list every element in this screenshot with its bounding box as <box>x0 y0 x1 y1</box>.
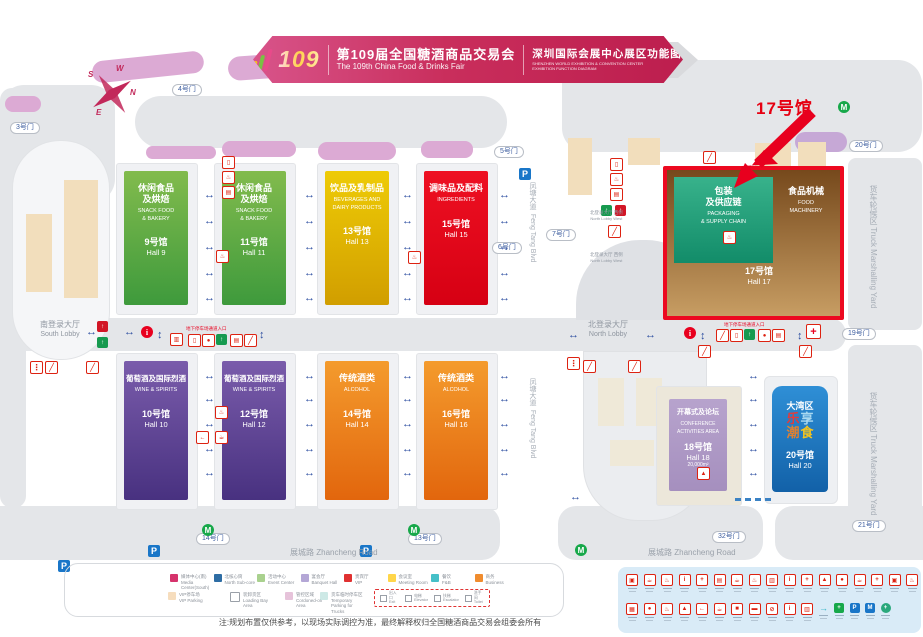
pink-canopy <box>421 141 473 158</box>
banner-divider <box>523 45 524 75</box>
double-arrow-icon: ↔ <box>402 468 413 479</box>
exhibition-map: 109 第109届全国糖酒商品交易会 The 109th China Food … <box>0 0 923 637</box>
hall20-brand-row1: 乐享 <box>772 412 828 426</box>
header-banner: 109 第109届全国糖酒商品交易会 The 109th China Food … <box>253 36 683 83</box>
double-arrow-icon: ↔ <box>304 293 315 304</box>
panel-facility-icon: ♨ <box>661 603 673 621</box>
legend-dashed-box: 出入口Exit电梯Elevator扶梯Escalator洗手间Toilet <box>374 589 490 607</box>
escalator-icon: ╱ <box>583 360 596 373</box>
escalator-icon: ╱ <box>608 225 621 238</box>
double-arrow-icon: ↔ <box>86 327 97 338</box>
double-arrow-icon: ↔ <box>304 190 315 201</box>
compass-s: S <box>88 70 93 79</box>
loading-bay <box>26 214 52 292</box>
underground-parking-label: 地下停车场通道入口 <box>186 326 227 332</box>
fengtang-blvd-label: 凤塘大道 Feng Tang Blvd <box>527 378 537 458</box>
panel-facility-icon: ● <box>644 603 656 621</box>
legend-swatch <box>431 574 439 582</box>
panel-facility-icon: → <box>819 603 829 621</box>
double-arrow-icon: ↔ <box>204 419 215 430</box>
double-arrow-icon: ↔ <box>304 268 315 279</box>
panel-facility-icon: ▲ <box>819 574 831 592</box>
hall20-brand-char: 享 <box>801 412 814 426</box>
double-arrow-icon: ↔ <box>499 419 510 430</box>
metro-icon: M <box>408 524 420 536</box>
legend-swatch <box>285 592 293 600</box>
south-lobby-label: 南登录大厅 South Lobby <box>40 320 80 340</box>
gate-label: 14号门 <box>196 533 230 545</box>
double-arrow-icon: ↔ <box>645 330 656 341</box>
panel-facility-icon: + <box>881 603 891 621</box>
double-arrow-icon: ↕ <box>157 330 163 341</box>
double-arrow-icon: ↔ <box>748 394 759 405</box>
facility-icon: ● <box>202 334 215 347</box>
facility-icon: ♨ <box>215 406 228 419</box>
double-arrow-icon: ↔ <box>204 293 215 304</box>
legend-item: VIP停车场VIP Parking <box>168 592 203 603</box>
panel-facility-icon: ▦ <box>626 603 638 621</box>
double-arrow-icon: ↔ <box>402 216 413 227</box>
legend-swatch <box>214 574 222 582</box>
legend-swatch <box>388 574 396 582</box>
truck-yard-upper <box>848 158 922 330</box>
loading-bay <box>628 138 660 165</box>
panel-facility-icon: + <box>696 574 708 592</box>
double-arrow-icon: ↔ <box>402 371 413 382</box>
double-arrow-icon: ↔ <box>204 268 215 279</box>
truck-yard-lower <box>848 345 922 520</box>
loading-bay <box>568 138 592 195</box>
panel-facility-icon: + <box>834 603 844 621</box>
panel-facility-icon: M <box>865 603 875 621</box>
legend-swatch <box>475 574 483 582</box>
double-arrow-icon: ↔ <box>204 371 215 382</box>
double-arrow-icon: ↔ <box>204 444 215 455</box>
hall-14: 传统酒类ALCOHOL14号馆Hall 14 <box>325 361 389 500</box>
panel-facility-icon: + <box>871 574 883 592</box>
hall-13: 饮品及乳制品BEVERAGES ANDDAIRY PRODUCTS13号馆Hal… <box>325 171 389 305</box>
double-arrow-icon: ↔ <box>499 371 510 382</box>
double-arrow-icon: ↔ <box>402 190 413 201</box>
panel-facility-icon: i <box>784 603 796 621</box>
escalator-icon: ⋮ <box>567 357 580 370</box>
panel-facility-icon: ♨ <box>661 574 673 592</box>
double-arrow-icon: ↔ <box>499 216 510 227</box>
legend-swatch <box>320 592 328 600</box>
hall20-brand-char: 食 <box>801 426 814 440</box>
legend-swatch <box>301 574 309 582</box>
double-arrow-icon: ↔ <box>402 268 413 279</box>
panel-facility-icon: ☕ <box>714 603 726 621</box>
panel-facility-icon: ■ <box>731 603 743 621</box>
compass-w: W <box>116 64 124 73</box>
dashed-route <box>735 498 771 501</box>
hall20-region: 大湾区 <box>772 399 828 412</box>
escalator-icon: ⋮ <box>30 361 43 374</box>
facility-icon: ▯ <box>610 158 623 171</box>
lobby-block <box>610 440 654 466</box>
double-arrow-icon: ↔ <box>499 444 510 455</box>
escalator-icon: ╱ <box>86 361 99 374</box>
hall20-brand-char: 潮 <box>786 426 799 440</box>
double-arrow-icon: ↔ <box>499 293 510 304</box>
pink-canopy <box>222 141 296 157</box>
parking-icon: P <box>519 168 531 180</box>
facility-icon: ☕ <box>215 431 228 444</box>
hall-16: 传统酒类ALCOHOL16号馆Hall 16 <box>424 361 488 500</box>
escalator-icon: ╱ <box>716 329 729 342</box>
panel-facility-icon: ☕ <box>644 574 656 592</box>
facility-icon: ← <box>196 431 209 444</box>
double-arrow-icon: ↔ <box>204 468 215 479</box>
compass-n: N <box>130 88 136 97</box>
panel-facility-icon: ▥ <box>766 574 778 592</box>
hall-17-label: 17号馆 Hall 17 <box>729 266 789 286</box>
facility-legend-panel: ▣☕♨i+▤☕♨▥i+▲●☕+▣♨i ▦●♨▲←☕■▬⊘i▥→+PM+ <box>618 567 921 633</box>
double-arrow-icon: ↔ <box>748 371 759 382</box>
compass-icon: S N E W <box>86 68 138 120</box>
hall20-num: 20号馆 <box>772 450 828 461</box>
panel-facility-icon: ▤ <box>714 574 726 592</box>
loading-bay <box>64 180 98 298</box>
panel-facility-icon: ☕ <box>854 574 866 592</box>
north-lobby-west-label: 北登录大厅 西侧 North Lobby West <box>590 210 623 222</box>
panel-facility-icon: + <box>801 574 813 592</box>
pink-canopy <box>146 146 216 159</box>
gate-label: 19号门 <box>842 328 876 340</box>
double-arrow-icon: ↔ <box>204 216 215 227</box>
legend-item: 活动中心Event Center <box>257 574 294 585</box>
double-arrow-icon: ↔ <box>499 394 510 405</box>
info-icon: i <box>684 327 696 339</box>
hall20-brand-char: 乐 <box>786 412 799 426</box>
double-arrow-icon: ↔ <box>304 371 315 382</box>
legend-dashed-item: 扶梯Escalator <box>434 594 459 603</box>
legend-dashed-item: 电梯Elevator <box>405 594 428 603</box>
facility-icon: ● <box>758 329 771 342</box>
panel-facility-icon: i <box>679 574 691 592</box>
double-arrow-icon: ↔ <box>748 468 759 479</box>
exit-icon: ↑ <box>97 321 108 332</box>
legend-swatch <box>344 574 352 582</box>
pink-canopy <box>318 142 396 160</box>
info-icon: i <box>141 326 153 338</box>
double-arrow-icon: ↔ <box>499 268 510 279</box>
gate-label: 21号门 <box>852 520 886 532</box>
hall17-right-en: FOODMACHINERY <box>775 200 837 215</box>
double-arrow-icon: ↔ <box>204 394 215 405</box>
double-arrow-icon: ↔ <box>304 468 315 479</box>
banner-divider <box>328 45 329 75</box>
panel-facility-icon: ▣ <box>626 574 638 592</box>
hall-12: 葡萄酒及国际烈酒WINE & SPIRITS12号馆Hall 12 <box>222 361 286 500</box>
compass-e: E <box>96 108 101 117</box>
double-arrow-icon: ↔ <box>748 444 759 455</box>
panel-facility-icon: ⊘ <box>766 603 778 621</box>
facility-icon: ♨ <box>610 173 623 186</box>
north-lobby-label: 北登录大厅 North Lobby <box>588 320 628 340</box>
panel-facility-icon: ☕ <box>731 574 743 592</box>
double-arrow-icon: ↕ <box>259 330 265 341</box>
double-arrow-icon: ↔ <box>402 394 413 405</box>
double-arrow-icon: ↔ <box>304 394 315 405</box>
legend-item: 媒体中心(南)Media Center(South) <box>170 574 215 591</box>
legend-swatch <box>257 574 265 582</box>
double-arrow-icon: ↔ <box>304 419 315 430</box>
facility-icon: ▯ <box>730 329 743 342</box>
escalator-icon: ╱ <box>628 360 641 373</box>
gate-label: 32号门 <box>712 531 746 543</box>
entrance-icon: ↑ <box>744 329 755 340</box>
double-arrow-icon: ↕ <box>797 331 803 342</box>
entrance-icon: ↑ <box>216 334 227 345</box>
pink-canopy <box>5 96 41 112</box>
banner-title-cn: 第109届全国糖酒商品交易会 <box>337 47 516 62</box>
hall-15: 调味品及配料INGREDIENTS15号馆Hall 15 <box>424 171 488 305</box>
legend-dashed-item: 出入口Exit <box>380 591 399 605</box>
legend-item: 宴会厅Banquet Hall <box>301 574 338 585</box>
hall20-name: Hall 20 <box>772 461 828 470</box>
double-arrow-icon: ↔ <box>402 419 413 430</box>
double-arrow-icon: ↔ <box>402 444 413 455</box>
legend-item: 北核心筒North Sub-core <box>214 574 256 585</box>
banner-subtitle: 深圳国际会展中心展区功能图 SHENZHEN WORLD EXHIBITION … <box>532 48 682 71</box>
panel-facility-icon: ♨ <box>749 574 761 592</box>
facility-icon: ♨ <box>222 171 235 184</box>
double-arrow-icon: ↔ <box>570 492 581 503</box>
lobby-block <box>598 378 624 426</box>
hall-9: 休闲食品及烘焙SNACK FOOD& BAKERY9号馆Hall 9 <box>124 171 188 305</box>
legend-item: 会议室Meeting Room <box>388 574 428 585</box>
hall20-brand-row2: 潮食 <box>772 426 828 440</box>
zhancheng-road-label: 展城路 Zhancheng Road <box>290 547 378 558</box>
double-arrow-icon: ↕ <box>700 331 706 342</box>
zhancheng-road-label: 展城路 Zhancheng Road <box>648 547 736 558</box>
gate-label: 5号门 <box>494 146 524 158</box>
panel-facility-icon: ▬ <box>749 603 761 621</box>
gate-label: 3号门 <box>10 122 40 134</box>
panel-facility-icon: ● <box>836 574 848 592</box>
hall17-left-en: PACKAGING& SUPPLY CHAIN <box>674 211 773 226</box>
annotation-arrow-icon <box>712 106 824 198</box>
double-arrow-icon: ↔ <box>304 242 315 253</box>
facility-icon: ▤ <box>222 186 235 199</box>
medical-icon: + <box>806 324 821 339</box>
banner-title: 第109届全国糖酒商品交易会 The 109th China Food & Dr… <box>337 47 516 72</box>
facility-icon: ▤ <box>610 188 623 201</box>
legend-swatch <box>170 574 178 582</box>
legend-item: 货车临时停车区Temporary Parking for Trucks <box>320 592 365 614</box>
double-arrow-icon: ↔ <box>204 242 215 253</box>
double-arrow-icon: ↔ <box>499 468 510 479</box>
facility-icon: ♨ <box>408 251 421 264</box>
escalator-icon: ╱ <box>244 334 257 347</box>
double-arrow-icon: ↔ <box>124 327 135 338</box>
facility-icon: ▥ <box>170 333 183 346</box>
parking-icon: P <box>148 545 160 557</box>
truck-yard-label: 货车轮候区 Truck Marshalling Yard <box>868 185 879 308</box>
panel-facility-icon: ▲ <box>679 603 691 621</box>
banner-subtitle-cn: 深圳国际会展中心展区功能图 <box>532 48 682 61</box>
entrance-icon: ↑ <box>97 337 108 348</box>
escalator-icon: ╱ <box>45 361 58 374</box>
footnote: 注:规划布置仅供参考，以现场实际调控为准，最终解释权归全国糖酒商品交易会组委会所… <box>150 617 610 628</box>
legend-item: 商务Business <box>475 574 504 585</box>
legend-item: 装卸货区Loading Bay Area <box>230 592 277 609</box>
double-arrow-icon: ↔ <box>402 293 413 304</box>
double-arrow-icon: ↔ <box>568 330 579 341</box>
double-arrow-icon: ↔ <box>499 242 510 253</box>
bottom-road-3 <box>775 506 923 560</box>
gate-label: 7号门 <box>546 229 576 241</box>
facility-icon: ▤ <box>230 334 243 347</box>
escalator-icon: ╱ <box>703 151 716 164</box>
legend-swatch <box>230 592 240 602</box>
panel-facility-icon: P <box>850 603 860 621</box>
facility-icon: ▲ <box>697 467 710 480</box>
double-arrow-icon: ↔ <box>499 190 510 201</box>
gate-label: 4号门 <box>172 84 202 96</box>
fengtang-blvd-label: 凤塘大道 Feng Tang Blvd <box>527 182 537 262</box>
facility-icon: ▯ <box>188 334 201 347</box>
escalator-icon: ╱ <box>698 345 711 358</box>
escalator-icon: ╱ <box>799 345 812 358</box>
hall-10: 葡萄酒及国际烈酒WINE & SPIRITS10号馆Hall 10 <box>124 361 188 500</box>
legend-dashed-item: 洗手间Toilet <box>465 591 484 605</box>
banner-title-en: The 109th China Food & Drinks Fair <box>337 62 516 72</box>
legend-item: 贵宾厅VIP <box>344 574 369 585</box>
legend-item: 餐饮F&B <box>431 574 451 585</box>
facility-icon: ♨ <box>723 231 736 244</box>
underground-parking-label: 地下停车场通道入口 <box>724 322 765 328</box>
panel-facility-icon: ← <box>696 603 708 621</box>
legend-swatch <box>168 592 176 600</box>
panel-facility-icon: ▣ <box>889 574 901 592</box>
double-arrow-icon: ↔ <box>204 190 215 201</box>
facility-icon: ▯ <box>222 156 235 169</box>
facility-icon: ♨ <box>216 250 229 263</box>
metro-icon: M <box>838 101 850 113</box>
gate-label: 20号门 <box>849 140 883 152</box>
north-lobby-west-label: 北登录大厅 西侧 North Lobby West <box>590 252 623 264</box>
panel-facility-icon: ♨ <box>906 574 918 592</box>
panel-facility-icon: ▥ <box>801 603 813 621</box>
logo-109: 109 <box>278 46 319 73</box>
facility-icon: ▤ <box>772 329 785 342</box>
metro-icon: M <box>202 524 214 536</box>
double-arrow-icon: ↔ <box>748 419 759 430</box>
panel-facility-icon: i <box>784 574 796 592</box>
hall-20: 大湾区 乐享 潮食 20号馆 Hall 20 <box>772 386 828 492</box>
truck-yard-label: 货车轮候区 Truck Marshalling Yard <box>868 392 879 515</box>
banner-subtitle-en2: EXHIBITION FUNCTION DIAGRAM <box>532 66 682 71</box>
double-arrow-icon: ↔ <box>304 216 315 227</box>
double-arrow-icon: ↔ <box>304 444 315 455</box>
metro-icon: M <box>575 544 587 556</box>
